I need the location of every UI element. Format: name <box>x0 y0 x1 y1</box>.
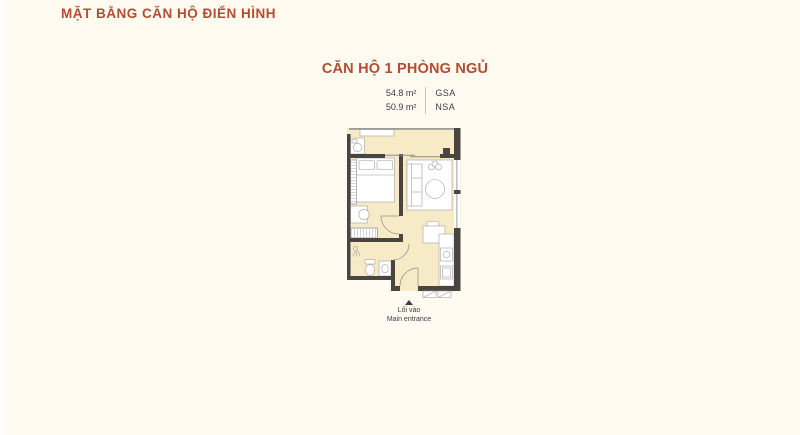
area-values: 54.8 m² 50.9 m² <box>354 87 416 114</box>
outside-area <box>347 280 391 298</box>
unit-name: CĂN HỘ 1 PHÒNG NGỦ <box>300 61 510 77</box>
sofa-icon <box>407 164 422 206</box>
entrance-label-en: Main entrance <box>372 316 446 325</box>
toilet-tank <box>365 260 375 265</box>
bath-vanity-icon <box>379 261 391 276</box>
area-value-gsa: 54.8 m² <box>354 87 416 101</box>
coffee-table-icon <box>426 180 445 199</box>
shoe-cabinet-icon <box>423 291 451 298</box>
pillow-icon <box>377 161 393 170</box>
area-label-gsa: GSA <box>435 87 455 101</box>
page-title: MẶT BẰNG CĂN HỘ ĐIỂN HÌNH <box>61 6 276 21</box>
balcony-rail <box>349 128 454 130</box>
entrance-arrow-icon <box>405 300 413 305</box>
floor-plan-svg <box>347 128 463 298</box>
toilet-icon <box>366 265 375 276</box>
pillow-icon <box>359 161 375 170</box>
window-icon <box>454 160 461 228</box>
area-label-nsa: NSA <box>435 101 455 115</box>
brochure-page: MẶT BẰNG CĂN HỘ ĐIỂN HÌNH CĂN HỘ 1 PHÒNG… <box>0 0 800 435</box>
plant-icon <box>436 164 442 170</box>
area-labels: GSA NSA <box>435 87 455 114</box>
kitchen-sink-icon <box>441 248 453 261</box>
chair-icon <box>359 209 369 219</box>
ac-ledge <box>360 130 394 137</box>
area-table: 54.8 m² 50.9 m² GSA NSA <box>330 87 480 114</box>
floor-plan <box>347 128 463 298</box>
entrance-marker: Lối vào Main entrance <box>372 300 446 324</box>
area-divider <box>425 87 426 114</box>
entrance-label-vi: Lối vào <box>372 307 446 316</box>
area-value-nsa: 50.9 m² <box>354 101 416 115</box>
